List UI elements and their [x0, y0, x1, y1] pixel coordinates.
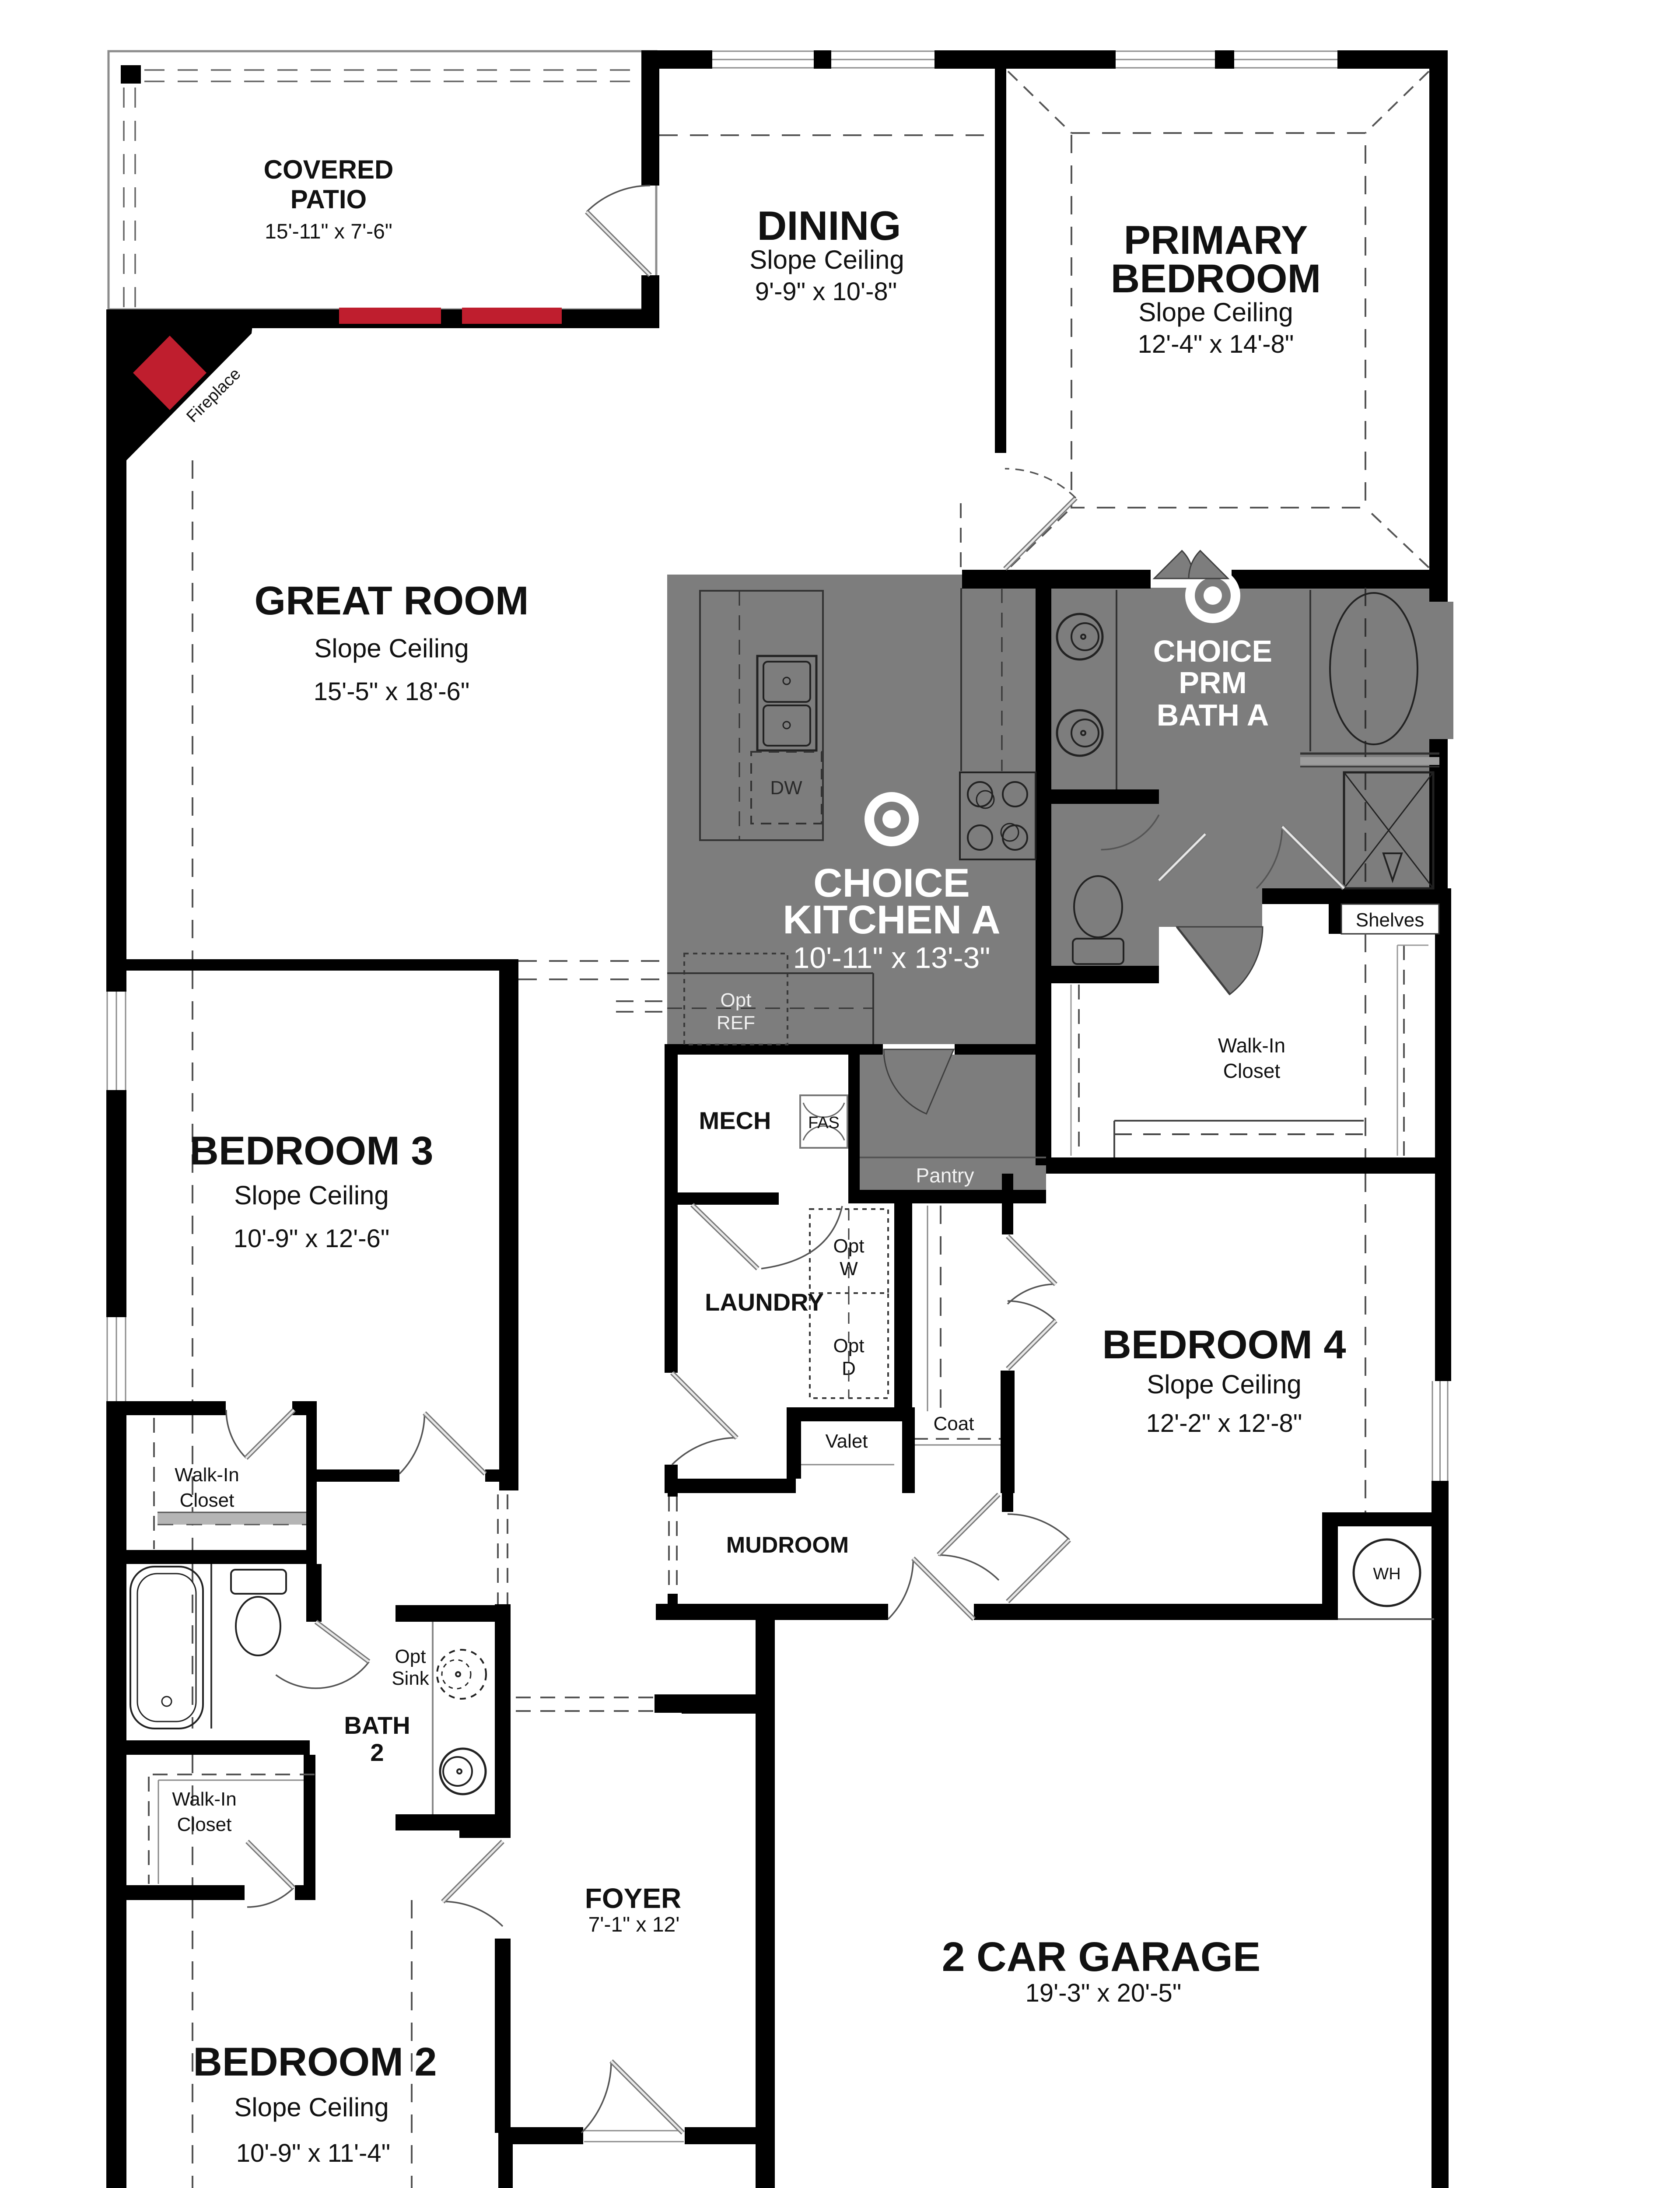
svg-text:PATIO: PATIO: [290, 185, 367, 214]
svg-text:MECH: MECH: [699, 1107, 771, 1134]
svg-text:CHOICE: CHOICE: [1153, 634, 1272, 668]
svg-text:Slope Ceiling: Slope Ceiling: [234, 2093, 389, 2122]
svg-text:Valet: Valet: [825, 1431, 868, 1452]
svg-text:Slope Ceiling: Slope Ceiling: [1138, 298, 1293, 327]
svg-text:19'-3" x 20'-5": 19'-3" x 20'-5": [1025, 1979, 1182, 2007]
svg-text:BATH: BATH: [344, 1711, 410, 1739]
svg-text:Slope Ceiling: Slope Ceiling: [314, 634, 469, 663]
svg-text:15'-5" x 18'-6": 15'-5" x 18'-6": [314, 677, 470, 706]
svg-text:BEDROOM 3: BEDROOM 3: [189, 1129, 433, 1173]
svg-text:REF: REF: [717, 1012, 755, 1034]
svg-text:2 CAR GARAGE: 2 CAR GARAGE: [942, 1934, 1260, 1980]
svg-text:BEDROOM 2: BEDROOM 2: [193, 2040, 437, 2084]
svg-text:12'-2" x 12'-8": 12'-2" x 12'-8": [1146, 1409, 1302, 1438]
svg-text:LAUNDRY: LAUNDRY: [705, 1288, 824, 1316]
svg-text:Slope Ceiling: Slope Ceiling: [234, 1181, 389, 1210]
svg-text:Walk-In: Walk-In: [175, 1464, 239, 1486]
svg-text:FOYER: FOYER: [585, 1883, 681, 1914]
svg-text:12'-4" x 14'-8": 12'-4" x 14'-8": [1138, 330, 1294, 358]
svg-text:9'-9" x 10'-8": 9'-9" x 10'-8": [755, 277, 897, 306]
svg-text:Closet: Closet: [180, 1490, 234, 1511]
svg-text:WH: WH: [1373, 1565, 1400, 1583]
svg-text:15'-11" x 7'-6": 15'-11" x 7'-6": [265, 220, 392, 243]
svg-text:Slope Ceiling: Slope Ceiling: [749, 245, 904, 274]
svg-text:Slope Ceiling: Slope Ceiling: [1147, 1370, 1302, 1399]
svg-text:PRIMARY: PRIMARY: [1124, 218, 1308, 263]
svg-text:PRM: PRM: [1179, 666, 1247, 700]
svg-text:Shelves: Shelves: [1356, 909, 1424, 931]
svg-text:10'-11" x 13'-3": 10'-11" x 13'-3": [793, 941, 990, 975]
svg-text:Sink: Sink: [392, 1668, 430, 1689]
svg-text:BATH A: BATH A: [1157, 698, 1269, 732]
svg-text:KITCHEN A: KITCHEN A: [783, 898, 1000, 942]
svg-text:Opt: Opt: [395, 1646, 426, 1667]
svg-text:DW: DW: [770, 777, 802, 799]
svg-text:Closet: Closet: [177, 1814, 232, 1835]
svg-text:BEDROOM: BEDROOM: [1111, 256, 1321, 301]
svg-text:Coat: Coat: [934, 1413, 974, 1434]
svg-text:Walk-In: Walk-In: [1218, 1034, 1285, 1057]
svg-text:BEDROOM 4: BEDROOM 4: [1102, 1322, 1346, 1367]
svg-text:GREAT ROOM: GREAT ROOM: [255, 579, 529, 623]
svg-text:MUDROOM: MUDROOM: [726, 1532, 849, 1558]
svg-text:Walk-In: Walk-In: [172, 1788, 237, 1810]
svg-text:2: 2: [370, 1739, 384, 1766]
svg-text:7'-1" x 12': 7'-1" x 12': [588, 1913, 680, 1936]
svg-text:Pantry: Pantry: [916, 1164, 974, 1187]
svg-text:10'-9" x 11'-4": 10'-9" x 11'-4": [236, 2139, 390, 2167]
svg-text:Closet: Closet: [1223, 1059, 1281, 1082]
svg-text:COVERED: COVERED: [264, 155, 394, 184]
svg-text:FAS: FAS: [808, 1114, 840, 1132]
svg-text:10'-9" x 12'-6": 10'-9" x 12'-6": [234, 1224, 390, 1253]
svg-text:DINING: DINING: [757, 203, 901, 249]
